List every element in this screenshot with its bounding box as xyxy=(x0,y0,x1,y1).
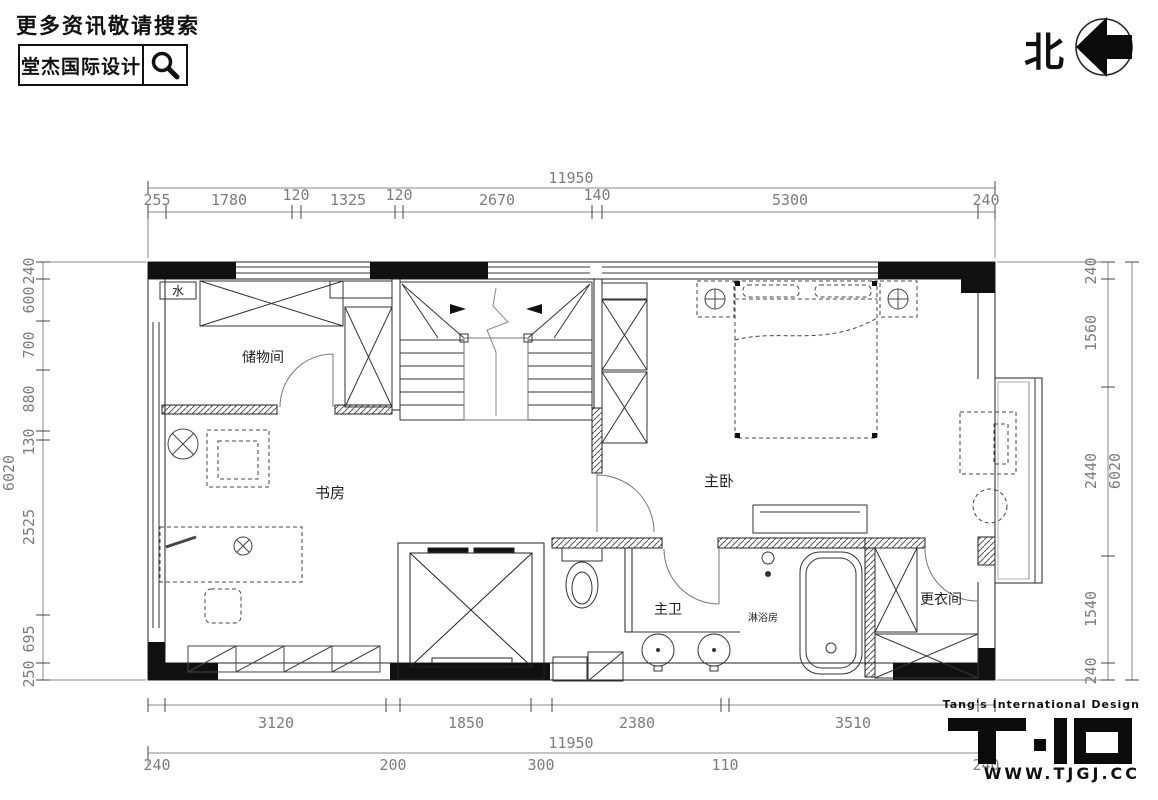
dim-left-2: 700 xyxy=(20,331,38,358)
dim-left-6: 695 xyxy=(20,625,38,652)
dim-left-3: 880 xyxy=(20,385,38,412)
dim-right-total: 6020 xyxy=(1106,453,1124,489)
dim-left-5: 2525 xyxy=(20,509,38,545)
bed xyxy=(735,281,877,438)
dim-left-total: 6020 xyxy=(0,455,18,491)
dim-left-0: 240 xyxy=(20,257,38,284)
dim-right-4: 240 xyxy=(1082,657,1100,684)
dim-bot-total: 11950 xyxy=(548,734,593,752)
label-water: 水 xyxy=(172,284,184,298)
bathroom xyxy=(553,548,862,681)
dim-top-1: 1780 xyxy=(211,191,247,209)
tid-tagline: Tang's International Design xyxy=(940,698,1140,711)
tid-logo-icon xyxy=(948,712,1138,768)
dim-top-2: 120 xyxy=(282,186,309,204)
storage-room xyxy=(160,281,392,407)
dim-top-total: 11950 xyxy=(548,169,593,187)
label-study: 书房 xyxy=(315,484,345,502)
bedroom-furniture xyxy=(597,281,1016,533)
dim-top-4: 120 xyxy=(385,186,412,204)
dressing-room xyxy=(875,548,978,678)
floor-plan: 储物间 书房 主卧 主卫 淋浴房 更衣间 水 11950 255 1780 12… xyxy=(0,0,1158,800)
interior-walls xyxy=(162,279,995,677)
dim-top-3: 1325 xyxy=(330,191,366,209)
dim-top-6: 140 xyxy=(583,186,610,204)
dim-bot-inner-0: 240 xyxy=(143,756,170,774)
staircase xyxy=(400,282,592,420)
stair-arrow-right xyxy=(526,304,542,314)
elevator-shaft xyxy=(398,543,544,679)
dim-left-1: 600 xyxy=(20,286,38,313)
bedroom-door xyxy=(597,473,654,532)
dim-left-7: 250 xyxy=(20,660,38,687)
bathtub xyxy=(800,552,862,674)
dim-top-7: 5300 xyxy=(772,191,808,209)
dim-bot-inner-1: 200 xyxy=(379,756,406,774)
dim-bot-1: 1850 xyxy=(448,714,484,732)
label-master-bedroom: 主卧 xyxy=(704,472,734,490)
dim-left-4: 130 xyxy=(20,428,38,455)
label-dressing: 更衣间 xyxy=(920,592,962,608)
wardrobe-column xyxy=(602,283,647,443)
dim-bot-0: 3120 xyxy=(258,714,294,732)
dim-bot-3: 3510 xyxy=(835,714,871,732)
tv-cabinet xyxy=(753,505,867,533)
study-furniture xyxy=(160,429,380,672)
label-shower: 淋浴房 xyxy=(748,611,778,624)
bath-door xyxy=(664,549,719,604)
dim-top-0: 255 xyxy=(143,191,170,209)
dim-top-5: 2670 xyxy=(479,191,515,209)
tid-website: WWW.TJGJ.CC xyxy=(940,764,1140,783)
dim-bot-inner-3: 110 xyxy=(711,756,738,774)
stair-arrow-left xyxy=(450,304,466,314)
label-master-bath: 主卫 xyxy=(654,602,682,618)
dim-bot-inner-2: 300 xyxy=(527,756,554,774)
dim-right-3: 1540 xyxy=(1082,591,1100,627)
dim-right-0: 240 xyxy=(1082,257,1100,284)
label-storage: 储物间 xyxy=(242,350,284,366)
dim-top-8: 240 xyxy=(972,191,999,209)
dim-bot-2: 2380 xyxy=(619,714,655,732)
dim-right-1: 1560 xyxy=(1082,315,1100,351)
dim-right-2: 2440 xyxy=(1082,453,1100,489)
